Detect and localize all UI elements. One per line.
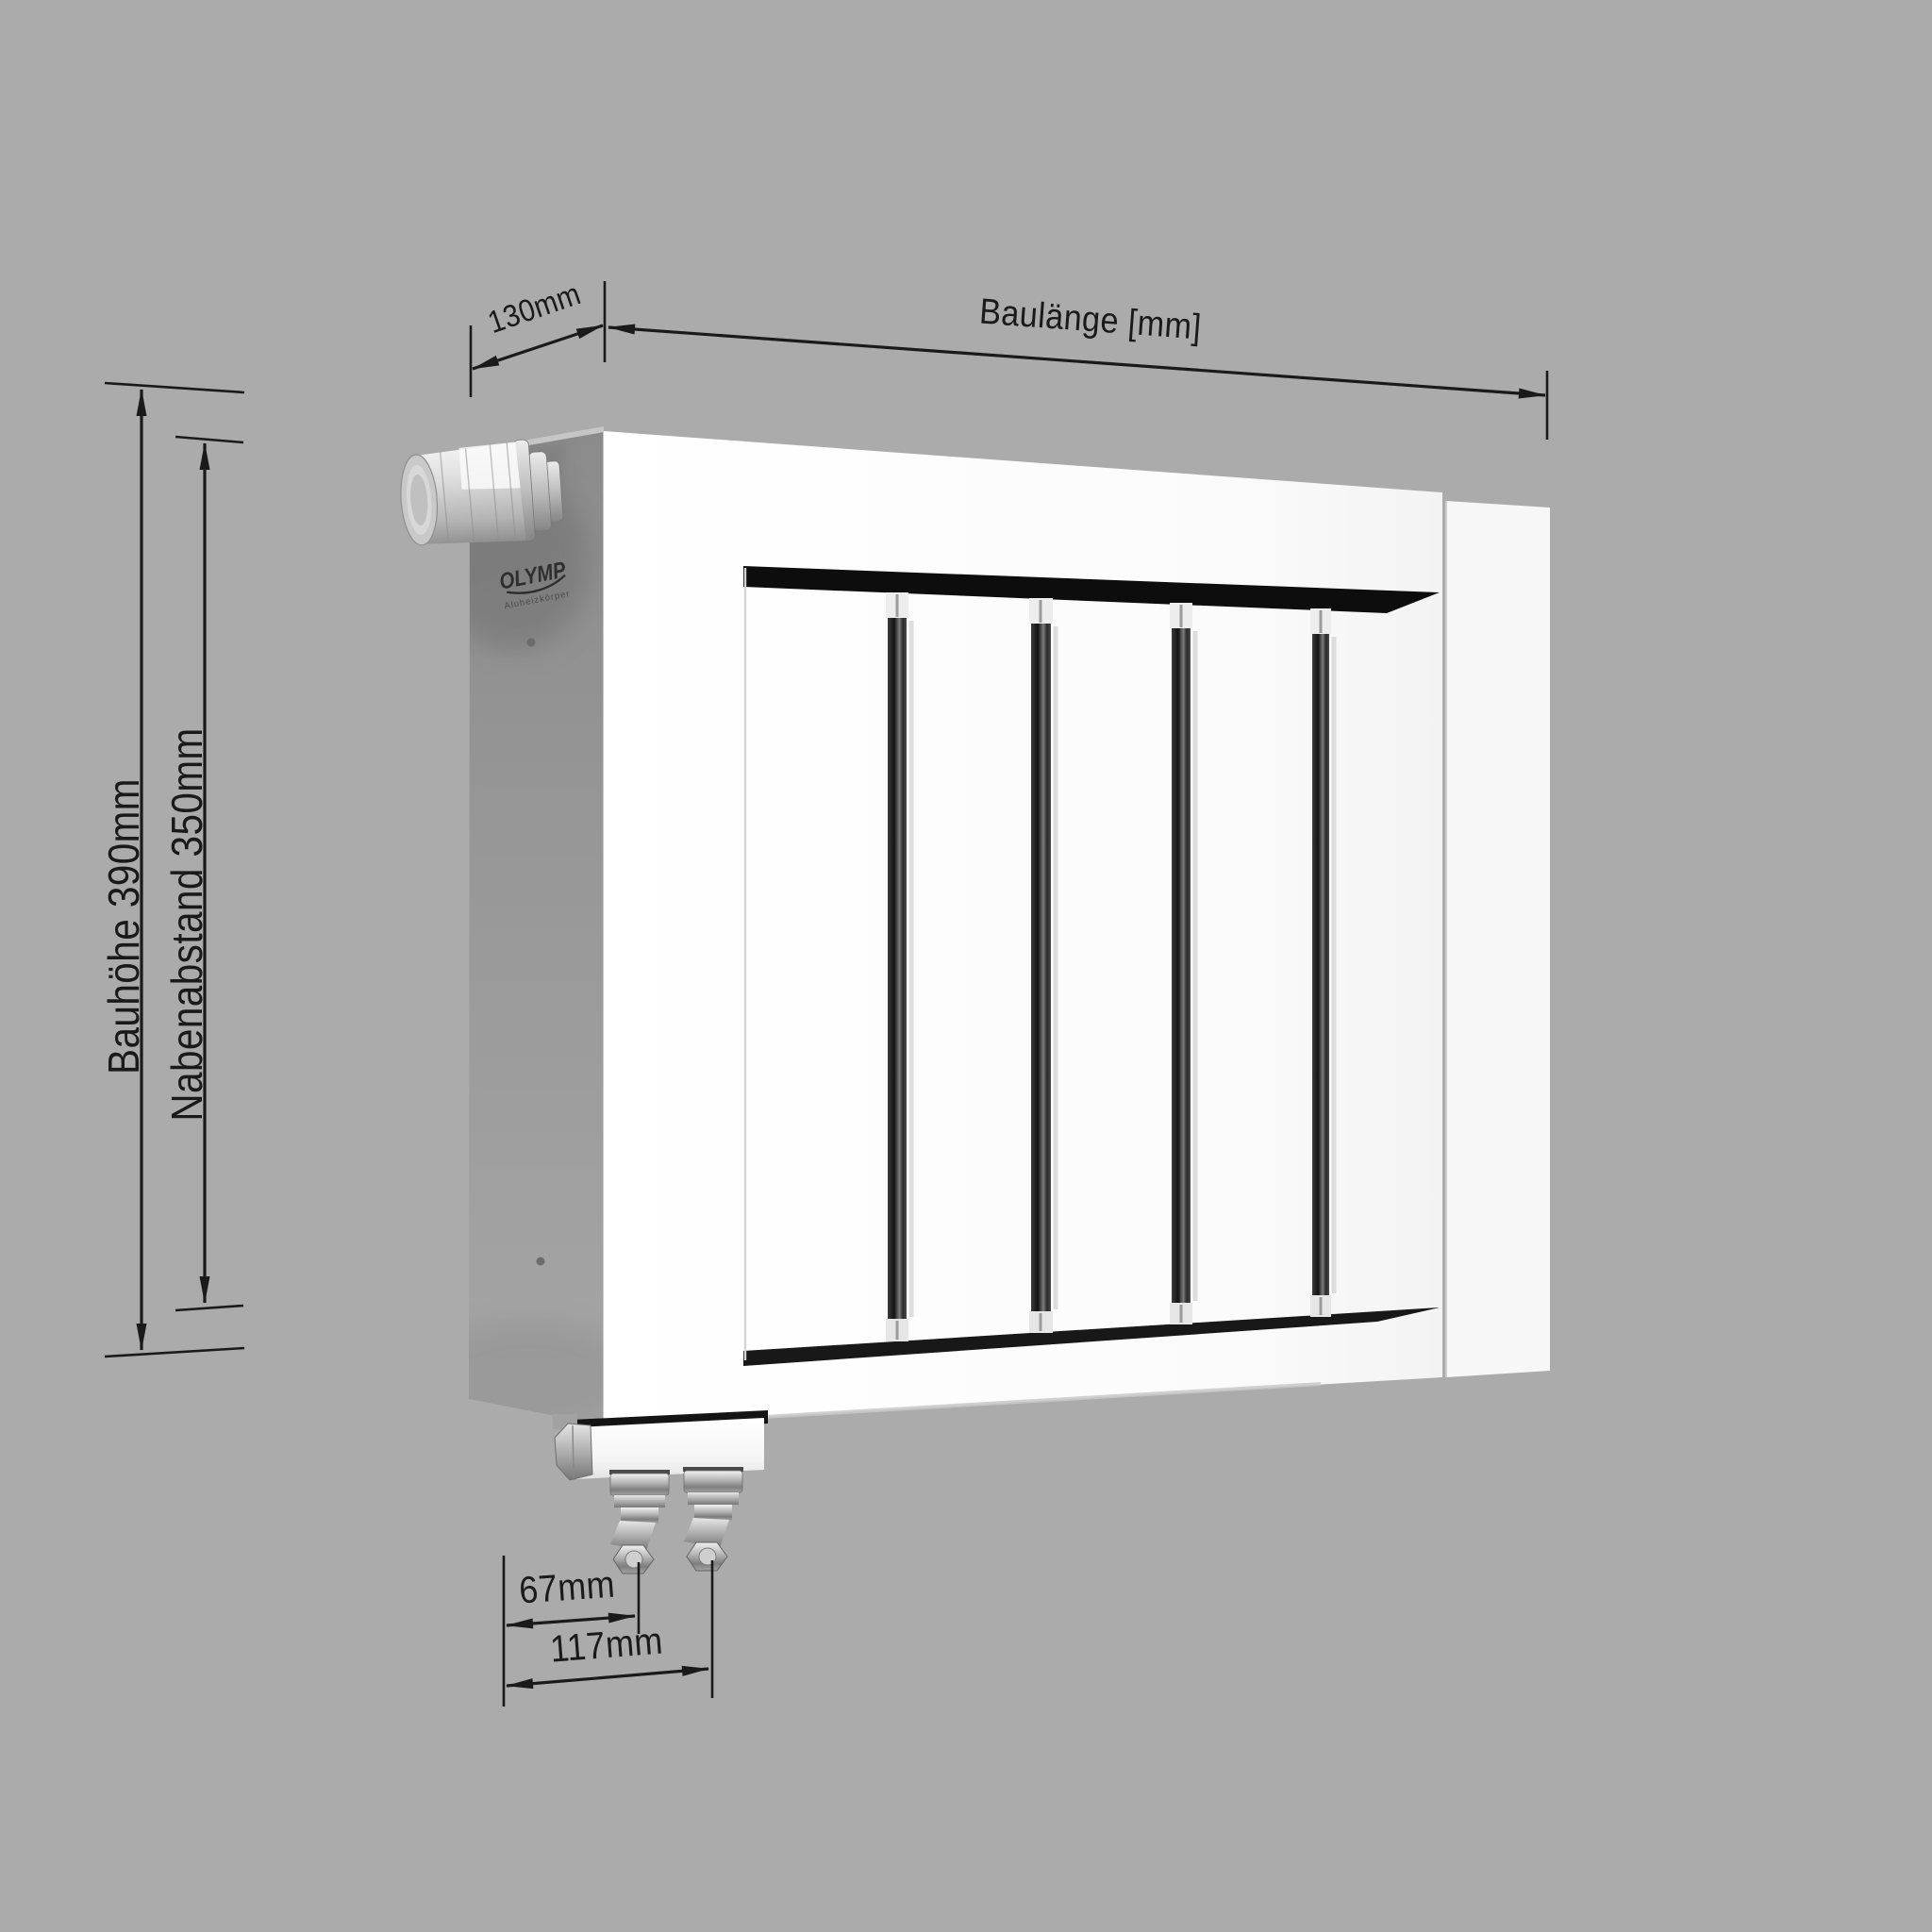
right-end-column: [1446, 501, 1550, 1377]
vent-dot-upper: [527, 639, 536, 647]
fin-gap: [888, 592, 907, 1341]
radiator-dimension-diagram: OLYMP Aluheizkörper: [0, 0, 1932, 1932]
dimension-label: Nabenabstand 350mm: [164, 727, 212, 1121]
dimension-label: Bauhöhe 390mm: [101, 778, 149, 1074]
vent-dot-lower: [537, 1257, 545, 1266]
dimension-label: 117mm: [549, 1621, 665, 1671]
dimension-label: 67mm: [518, 1564, 617, 1612]
fin-gap: [1172, 603, 1191, 1324]
diagram-canvas: OLYMP Aluheizkörper: [0, 0, 1932, 1932]
fin-gap: [1031, 598, 1051, 1333]
fin-gap: [1312, 608, 1329, 1317]
